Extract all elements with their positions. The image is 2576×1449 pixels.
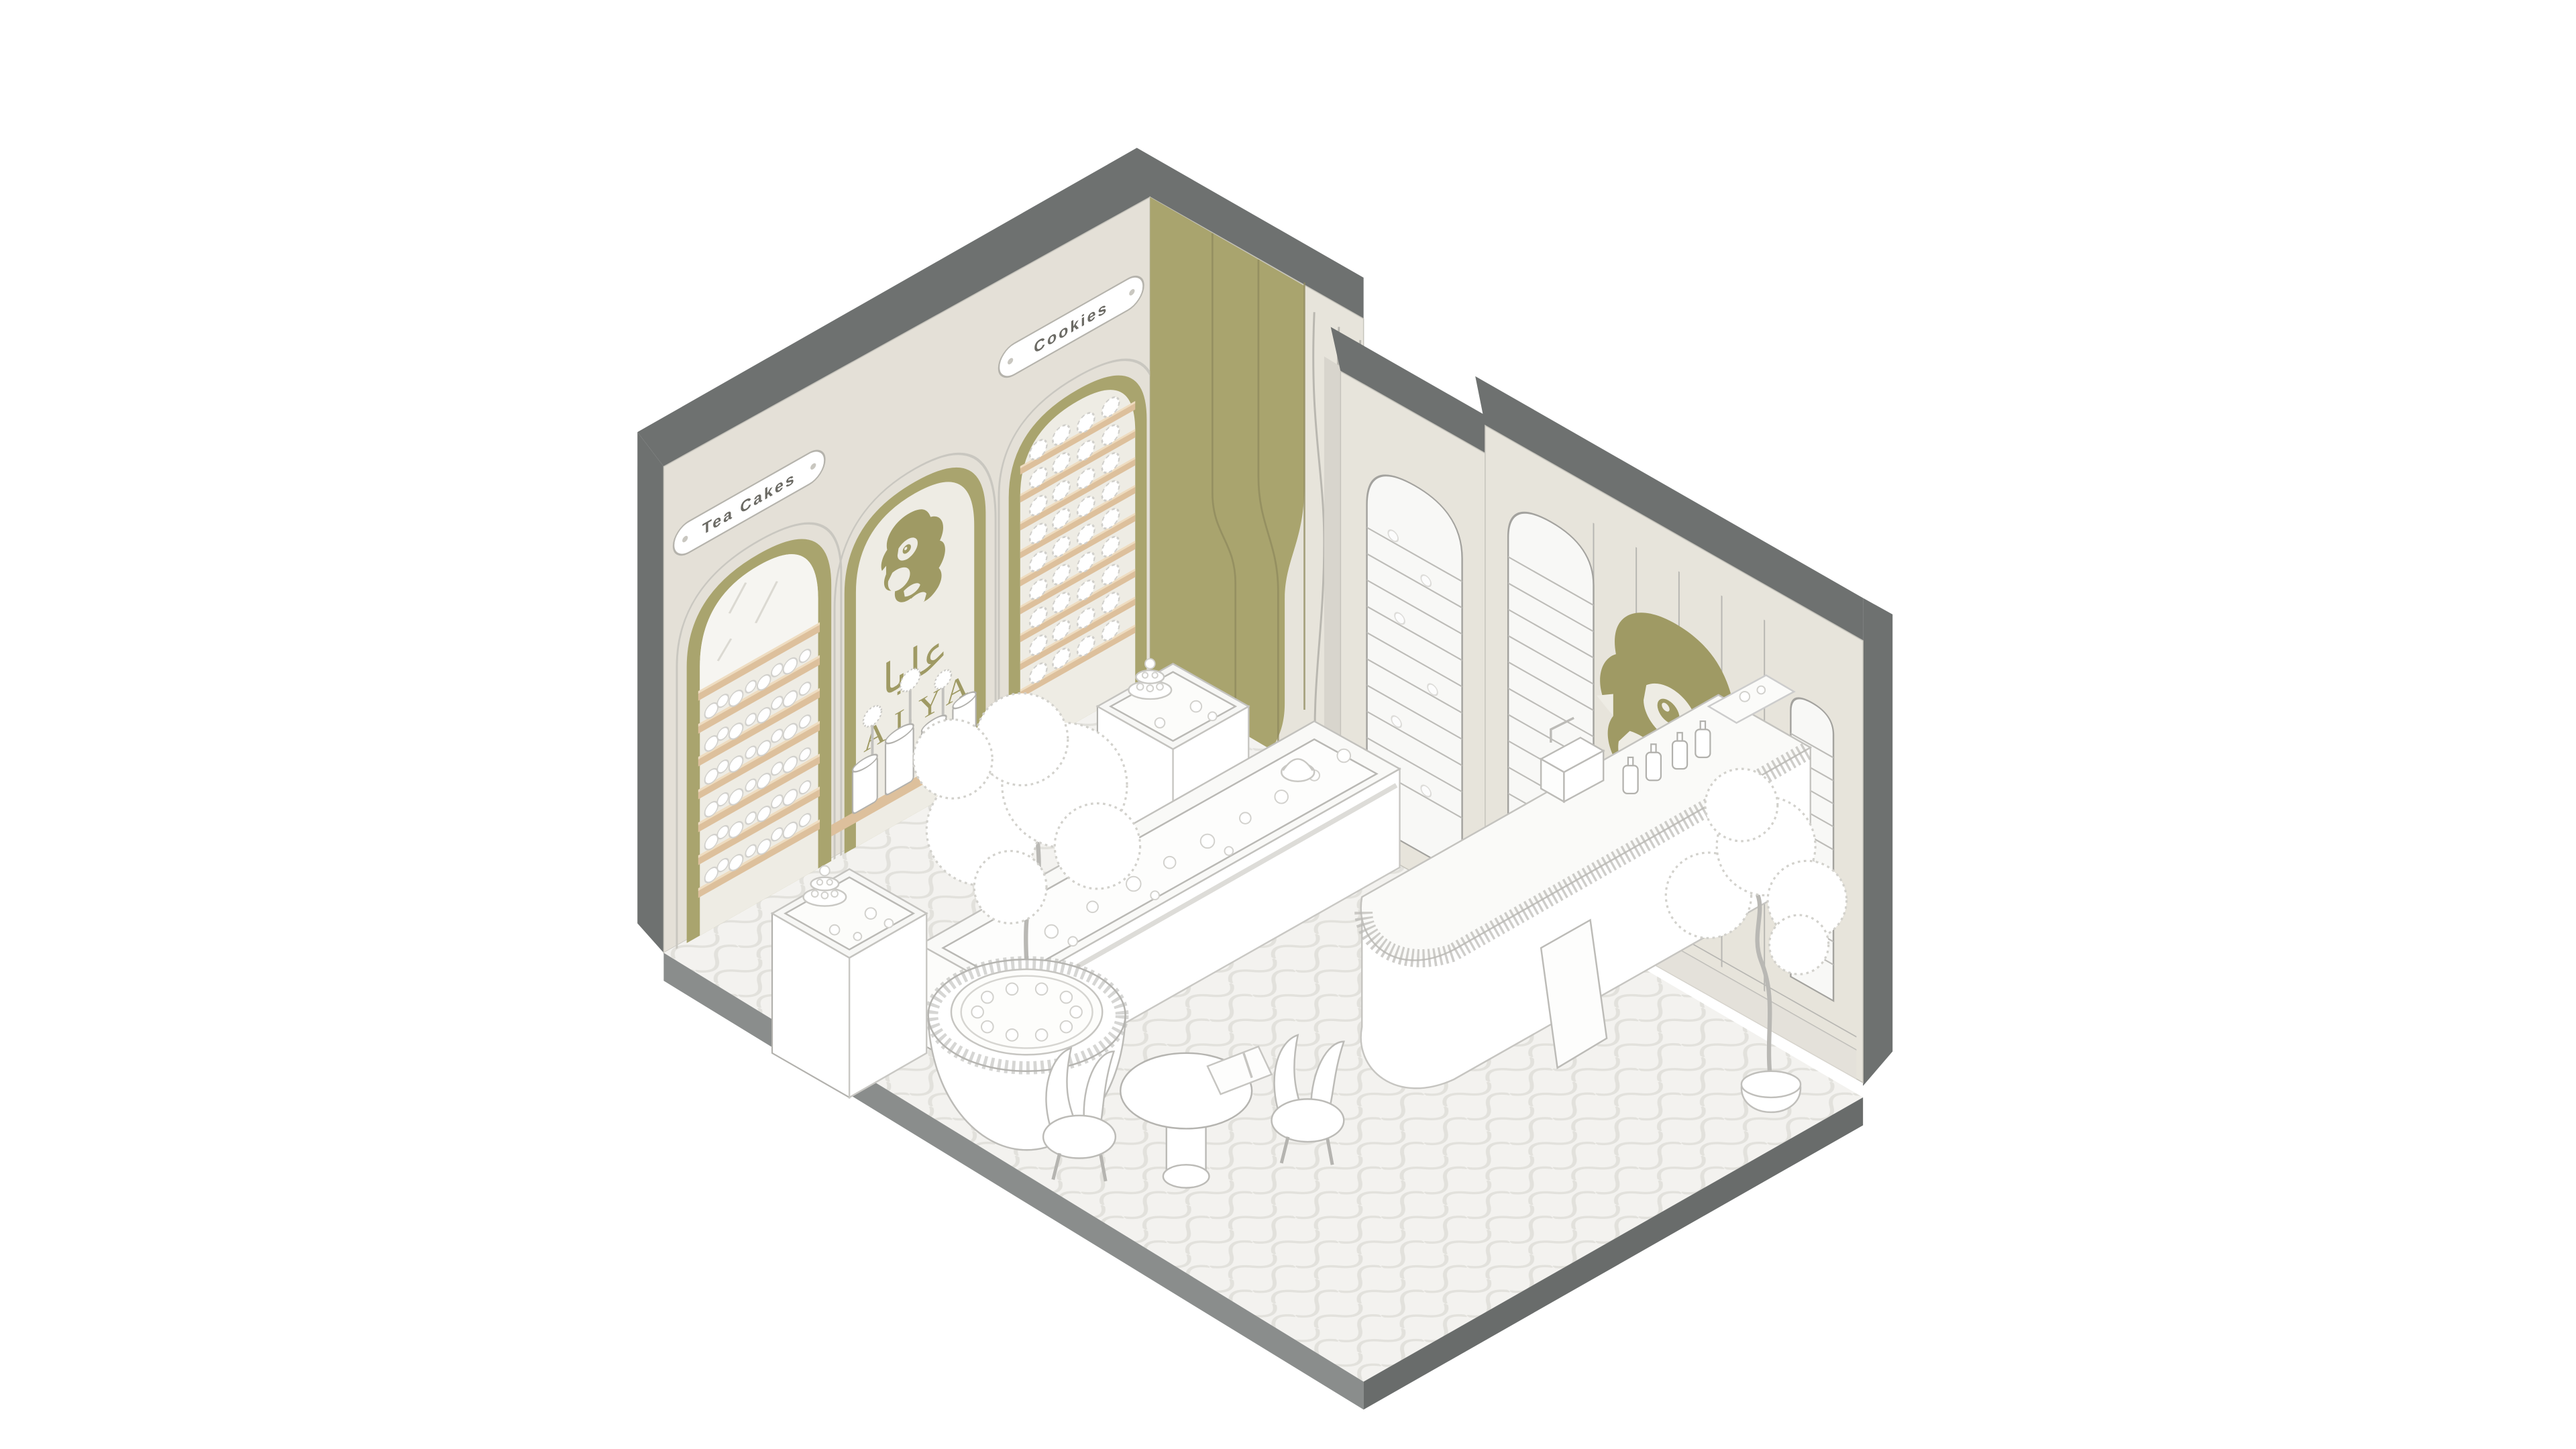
right-wall-outer-edge (1863, 598, 1892, 1085)
scene-isometric-bakery: Tea Cakes عليا ALYA (0, 0, 2576, 1449)
left-wall-outer-edge (637, 432, 663, 953)
display-pedestal-front (772, 866, 926, 1097)
rendering-canvas: Tea Cakes عليا ALYA (0, 0, 2576, 1449)
